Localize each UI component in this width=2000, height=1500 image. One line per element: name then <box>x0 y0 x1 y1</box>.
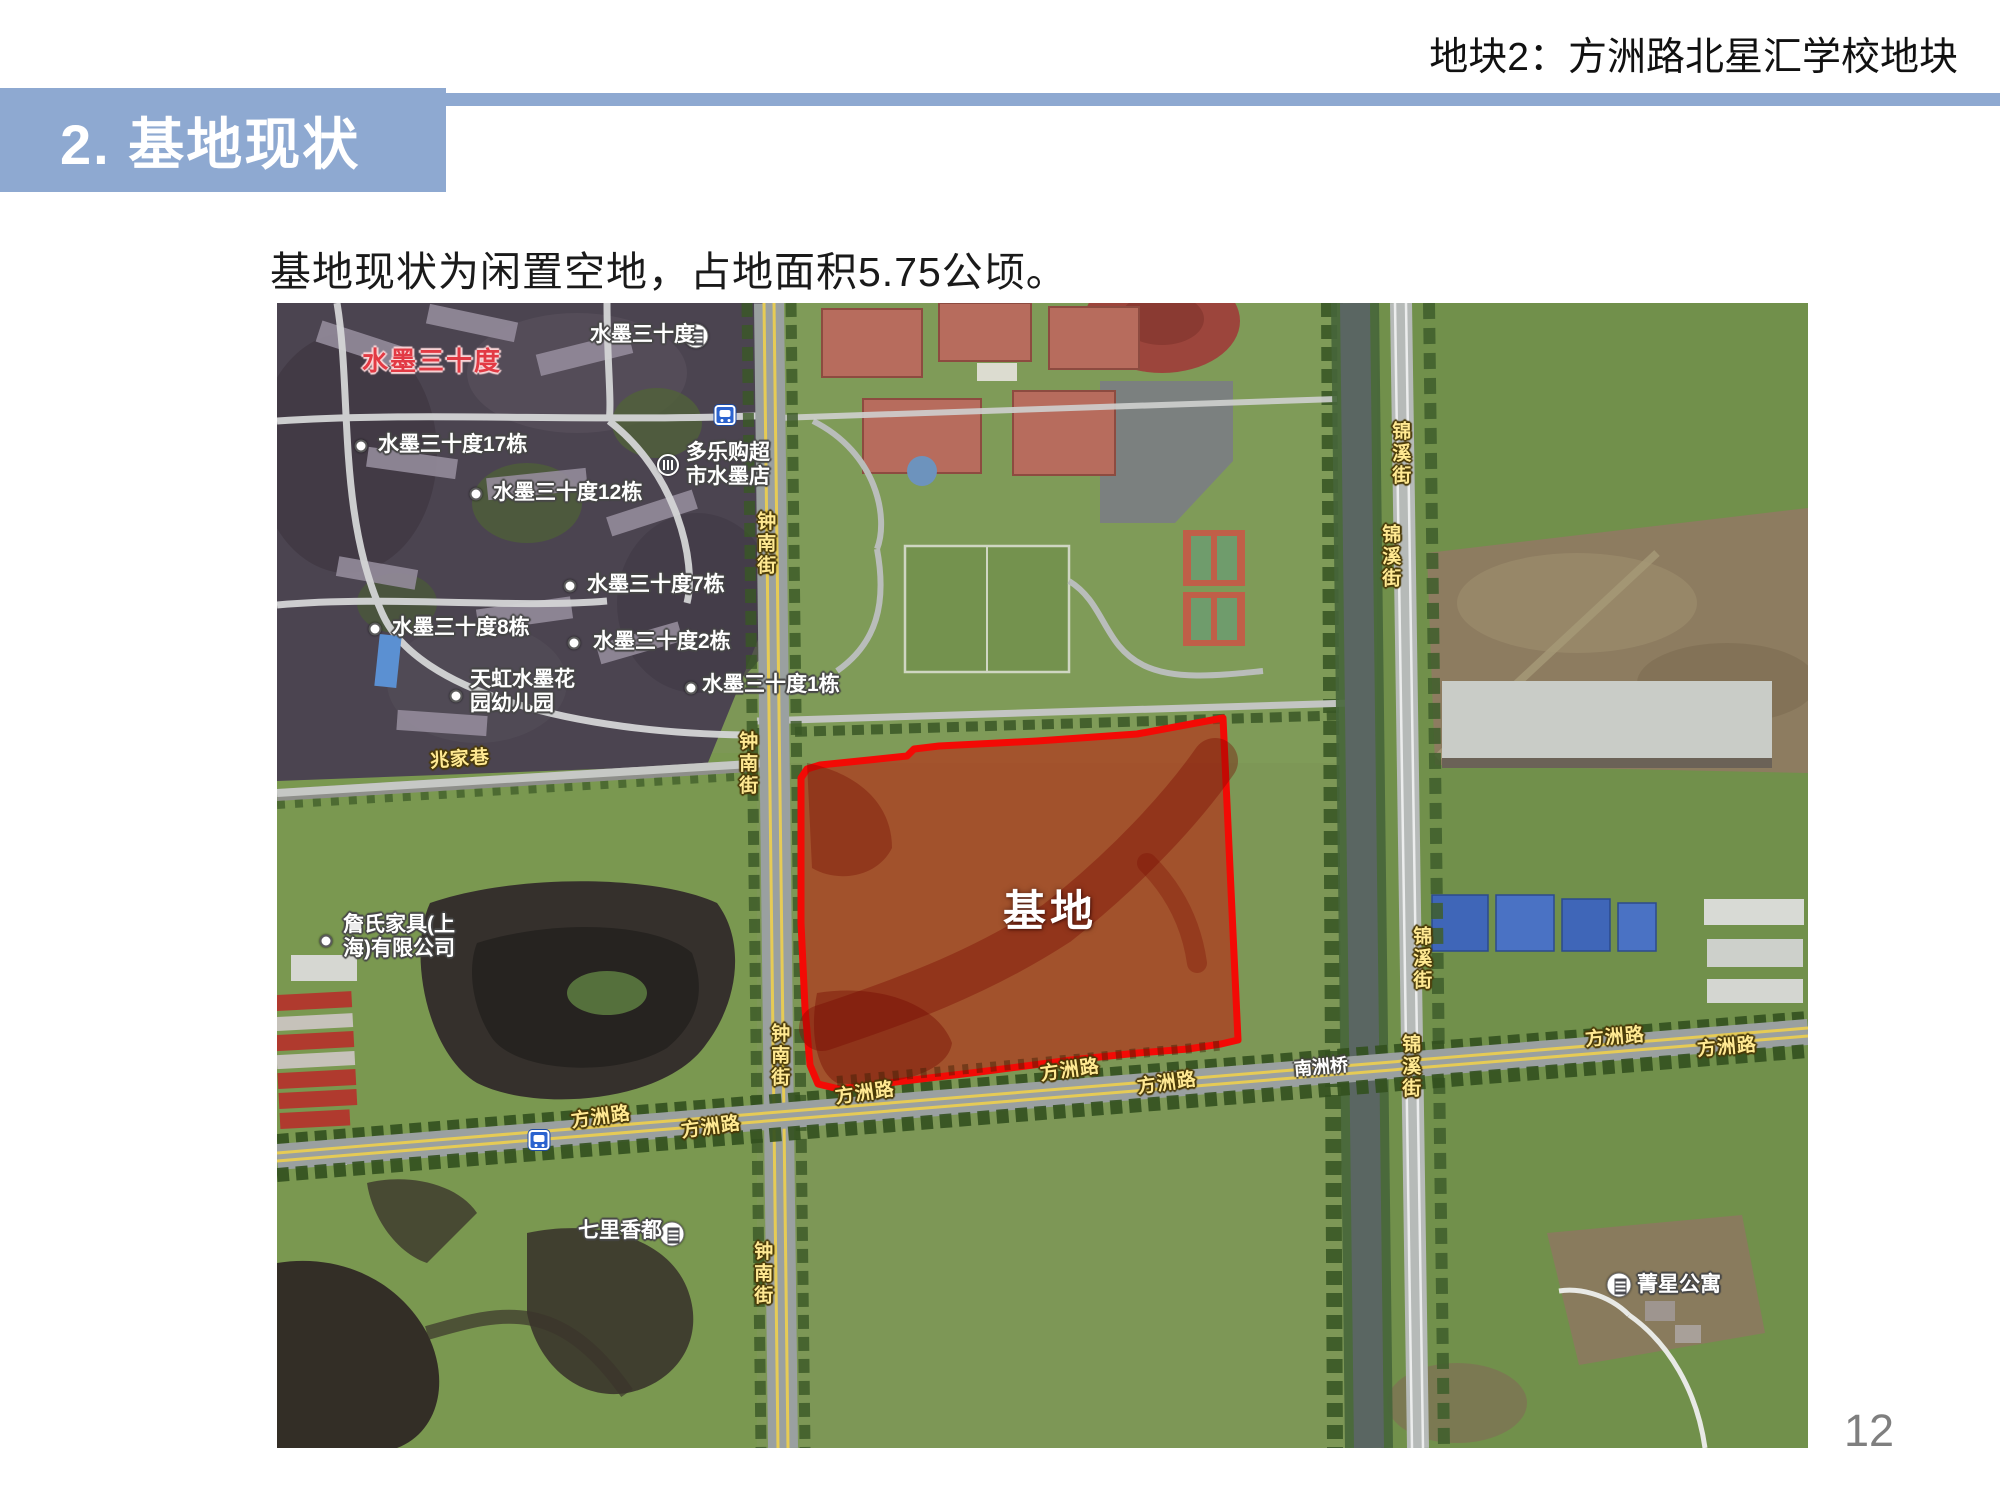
site-area-label: 基地 <box>1003 877 1097 939</box>
map-label: 锦溪街 <box>1399 1034 1420 1100</box>
map-label: 七里香都 <box>578 1219 662 1243</box>
map-labels-layer: 水墨三十度水墨三十度水墨三十度17栋水墨三十度12栋水墨三十度7栋水墨三十度8栋… <box>277 303 1808 1448</box>
satellite-map: 水墨三十度水墨三十度水墨三十度17栋水墨三十度12栋水墨三十度7栋水墨三十度8栋… <box>277 303 1808 1448</box>
page-number: 12 <box>1844 1405 1894 1457</box>
map-label: 锦溪街 <box>1410 926 1431 992</box>
poi-dot-marker <box>355 440 368 453</box>
section-title: 2. 基地现状 <box>0 100 360 181</box>
slide-page: 地块2：方洲路北星汇学校地块 2. 基地现状 基地现状为闲置空地，占地面积5.7… <box>0 0 2000 1500</box>
map-label: 水墨三十度7栋 <box>587 573 725 597</box>
map-label: 水墨三十度12栋 <box>493 481 642 505</box>
map-label: 方洲路 <box>1039 1056 1101 1085</box>
label-shuimo-sanshidu-red: 水墨三十度 <box>362 347 502 376</box>
map-label: 水墨三十度17栋 <box>378 433 527 457</box>
building-icon <box>660 1222 685 1247</box>
map-label: 钟南街 <box>751 1241 772 1307</box>
poi-dot-marker <box>320 935 333 948</box>
map-label: 水墨三十度8栋 <box>392 616 530 640</box>
poi-dot-marker <box>564 580 577 593</box>
map-label: 方洲路 <box>570 1103 632 1132</box>
map-label: 多乐购超 市水墨店 <box>686 441 770 488</box>
poi-dot-marker <box>685 682 698 695</box>
map-label: 水墨三十度1栋 <box>702 673 840 697</box>
map-label: 钟南街 <box>736 731 757 797</box>
metro-icon <box>529 1130 550 1150</box>
map-label: 方洲路 <box>834 1079 896 1108</box>
map-label: 方洲路 <box>1136 1069 1198 1098</box>
map-label: 菁星公寓 <box>1637 1273 1721 1297</box>
body-paragraph: 基地现状为闲置空地，占地面积5.75公顷。 <box>270 238 1068 298</box>
map-label: 水墨三十度2栋 <box>593 630 731 654</box>
building-icon <box>1607 1273 1632 1298</box>
metro-icon <box>715 405 736 425</box>
map-label: 锦溪街 <box>1379 524 1400 590</box>
map-label: 兆家巷 <box>429 747 490 772</box>
map-label: 方洲路 <box>680 1113 742 1142</box>
slide-header-title: 地块2：方洲路北星汇学校地块 <box>1429 26 1958 82</box>
shop-icon <box>657 454 679 476</box>
poi-dot-marker <box>450 690 463 703</box>
map-label: 方洲路 <box>1696 1034 1758 1060</box>
map-label: 锦溪街 <box>1389 421 1410 487</box>
section-title-bar: 2. 基地现状 <box>0 88 446 192</box>
map-label: 钟南街 <box>754 511 775 577</box>
map-label: 天虹水墨花 园幼儿园 <box>470 668 575 715</box>
map-label: 詹氏家具(上 海)有限公司 <box>343 913 455 960</box>
poi-dot-marker <box>369 623 382 636</box>
poi-dot-marker <box>470 488 483 501</box>
map-label: 方洲路 <box>1584 1024 1646 1050</box>
label-shuimo-sanshidu: 水墨三十度 <box>590 323 695 347</box>
map-label: 钟南街 <box>768 1023 789 1089</box>
poi-dot-marker <box>568 637 581 650</box>
map-label: 南洲桥 <box>1293 1055 1349 1080</box>
